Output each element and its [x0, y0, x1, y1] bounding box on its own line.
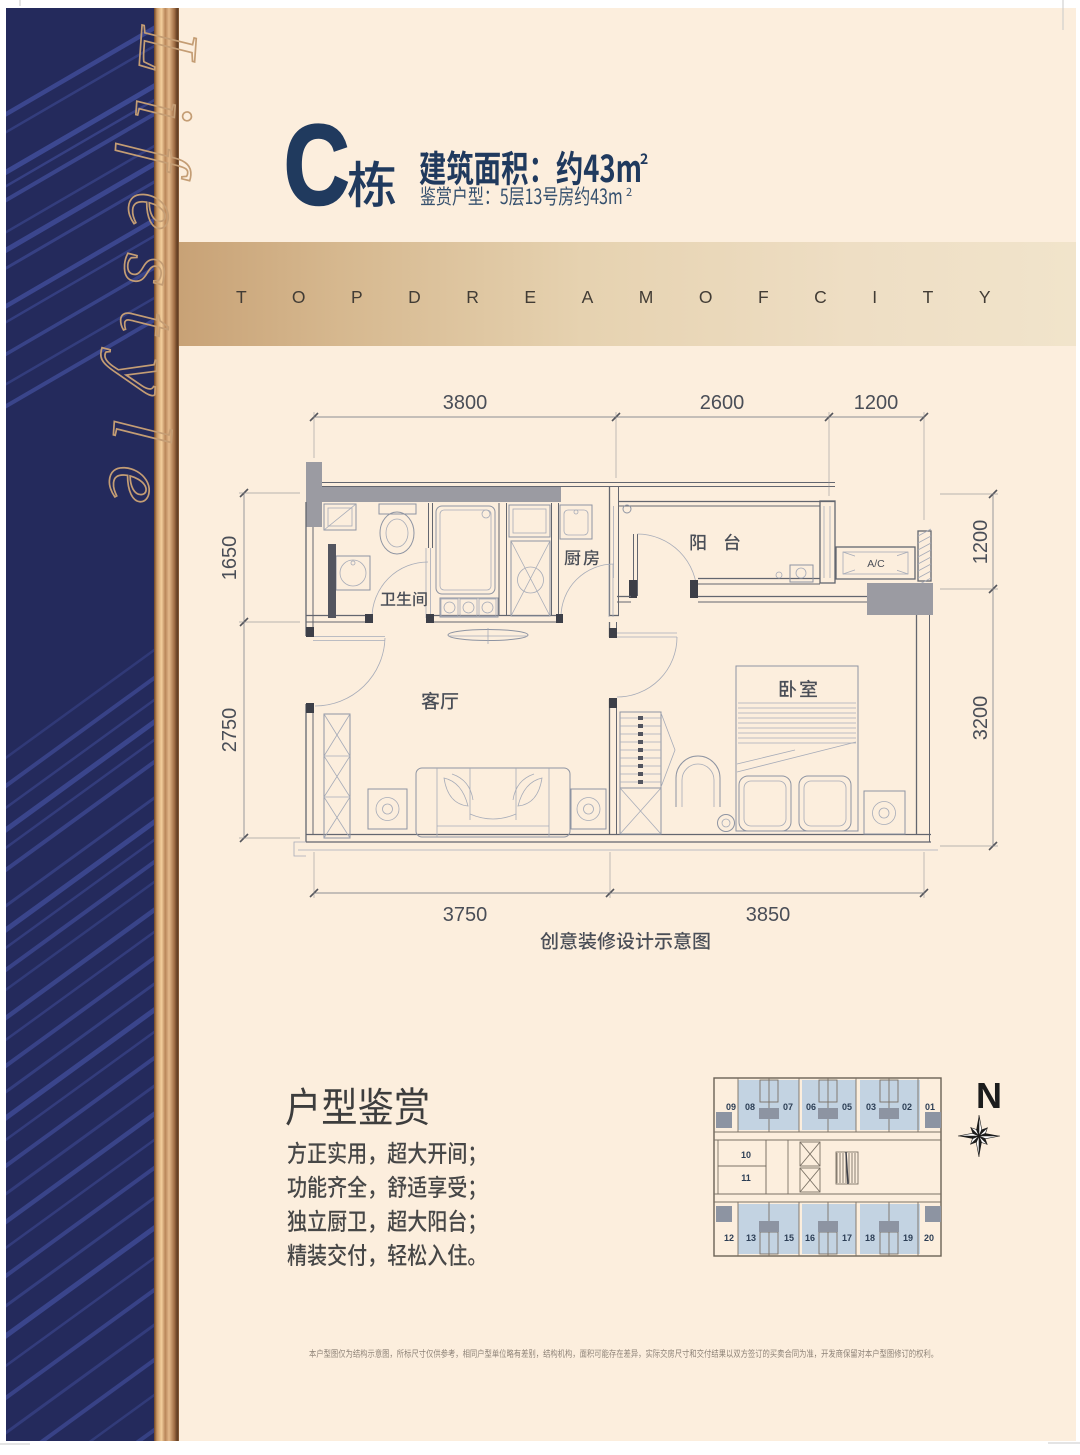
- svg-text:C: C: [284, 101, 349, 228]
- svg-text:2750: 2750: [219, 708, 241, 753]
- svg-text:06: 06: [806, 1102, 816, 1112]
- svg-text:3750: 3750: [443, 904, 488, 926]
- svg-text:09: 09: [726, 1102, 736, 1112]
- svg-text:2600: 2600: [700, 392, 745, 414]
- svg-text:08: 08: [745, 1102, 755, 1112]
- svg-text:17: 17: [842, 1233, 852, 1243]
- svg-text:05: 05: [842, 1102, 852, 1112]
- svg-text:N: N: [976, 1075, 1002, 1116]
- svg-text:16: 16: [805, 1233, 815, 1243]
- svg-text:3200: 3200: [970, 696, 992, 741]
- svg-text:3800: 3800: [443, 392, 488, 414]
- svg-text:12: 12: [724, 1233, 734, 1243]
- svg-text:1200: 1200: [970, 520, 992, 565]
- svg-text:1200: 1200: [854, 392, 899, 414]
- svg-text:1650: 1650: [219, 536, 241, 581]
- svg-text:03: 03: [866, 1102, 876, 1112]
- svg-text:20: 20: [924, 1233, 934, 1243]
- svg-text:19: 19: [903, 1233, 913, 1243]
- svg-text:01: 01: [925, 1102, 935, 1112]
- svg-text:02: 02: [902, 1102, 912, 1112]
- svg-text:11: 11: [741, 1173, 751, 1183]
- svg-text:07: 07: [783, 1102, 793, 1112]
- svg-text:TOPDREAMOFCITY: TOPDREAMOFCITY: [236, 287, 1036, 307]
- svg-text:3850: 3850: [746, 904, 791, 926]
- svg-text:13: 13: [746, 1233, 756, 1243]
- svg-text:10: 10: [741, 1150, 751, 1160]
- svg-text:18: 18: [865, 1233, 875, 1243]
- svg-text:15: 15: [784, 1233, 794, 1243]
- svg-text:A/C: A/C: [867, 558, 885, 570]
